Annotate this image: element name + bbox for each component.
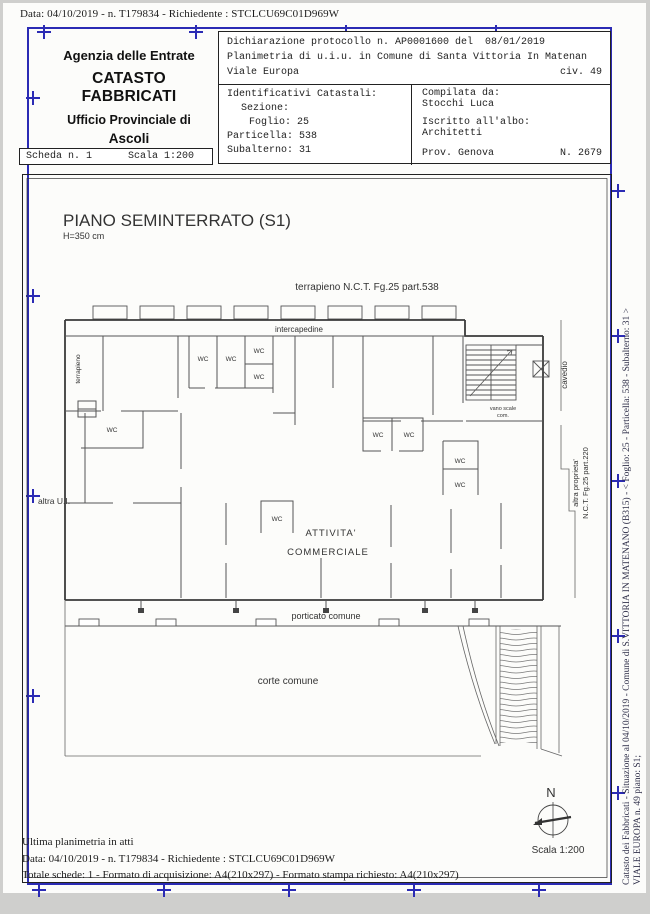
compass-north-label: N [546,785,555,800]
vano-scale-label-1: vano scale [490,406,516,412]
planimetria-line: Planimetria di u.i.u. in Comune di Santa… [227,50,602,65]
cadastral-identifiers: Identificativi Catastali: Sezione: Fogli… [219,85,412,165]
staircase [466,345,543,400]
registration-tick [32,883,46,897]
wc-label: WC [198,356,209,363]
footer-block: Ultima planimetria in atti Data: 04/10/2… [22,834,459,884]
declaration-section: Dichiarazione protocollo n. AP0001600 de… [219,32,610,85]
porticato-label: porticato comune [291,611,360,621]
wc-label: WC [226,356,237,363]
vano-scale-label-2: com. [497,413,509,419]
compass-icon: N [533,785,571,838]
altra-ui-label: altra U.I. [38,496,70,506]
floorplan-sheet: PIANO SEMINTERRATO (S1) H=350 cm terrapi… [21,173,613,885]
protocol-line: Dichiarazione protocollo n. AP0001600 de… [227,35,602,50]
wc-label: WC [107,427,118,434]
cadastral-floorplan-page: { "page": { "top_line": "Data: 04/10/201… [0,0,650,914]
registration-tick [532,883,546,897]
compiler-name: Stocchi Luca [422,99,602,110]
sezione-field: Sezione: [227,102,411,116]
cavedio-shaft [533,361,549,377]
street-name: Viale Europa [227,65,299,80]
identifiers-title: Identificativi Catastali: [227,88,411,102]
wc-label: WC [254,374,265,381]
agency-header: Agenzia delle Entrate CATASTO FABBRICATI… [43,36,215,146]
attivita-label-2: COMMERCIALE [287,547,369,558]
wc-label: WC [373,432,384,439]
office-city: Ascoli [43,131,215,146]
terrapieno-left-label: terrapieno [75,354,82,384]
street-row: Viale Europa civ. 49 [227,65,602,80]
footer-line-2: Data: 04/10/2019 - n. T179834 - Richiede… [22,851,459,868]
province-row: Prov. Genova N. 2679 [422,148,602,159]
ramp [458,626,562,756]
wc-label: WC [254,348,265,355]
registration-tick [282,883,296,897]
plan-scale-label: Scala 1:200 [532,845,585,856]
office-line: Ufficio Provinciale di [43,113,215,127]
intercapedine-label: intercapedine [275,325,324,334]
albo-label: Iscritto all'albo: [422,117,602,128]
side-margin-line-1: Catasto dei Fabbricati - Situazione al 0… [622,29,633,885]
compiled-by-label: Compilata da: [422,88,602,99]
catasto-title: CATASTO FABBRICATI [43,70,215,106]
scanned-document: Data: 04/10/2019 - n. T179834 - Richiede… [3,3,646,893]
albo-number: N. 2679 [560,148,602,159]
agency-name: Agenzia delle Entrate [43,48,215,63]
scheda-scale: Scala 1:200 [128,151,194,162]
civic-number: civ. 49 [560,65,602,80]
altra-proprieta-label-1: altra proprieta' [571,459,580,507]
side-margin-line-2: VIALE EUROPA n. 49 piano: S1; [633,29,644,885]
scheda-strip: Scheda n. 1 Scala 1:200 [19,148,213,165]
structural-walls [65,320,543,600]
footer-line-3: Totale schede: 1 - Formato di acquisizio… [22,867,459,884]
albo-value: Architetti [422,128,602,139]
altra-proprieta-label-2: N.C.T. Fg.25 part.220 [581,447,590,519]
side-margin-text: Catasto dei Fabbricati - Situazione al 0… [622,29,644,885]
identifiers-section: Identificativi Catastali: Sezione: Fogli… [219,85,610,165]
province: Prov. Genova [422,148,494,159]
registration-tick [407,883,421,897]
corte-label: corte comune [258,676,319,687]
plan-title: PIANO SEMINTERRATO (S1) [63,211,291,230]
subalterno-field: Subalterno: 31 [227,144,411,158]
attivita-label-1: ATTIVITA' [305,528,356,539]
wc-label: WC [404,432,415,439]
wc-label: WC [455,482,466,489]
wc-label: WC [455,458,466,465]
top-piers [93,306,456,319]
terrapieno-top-label: terrapieno N.C.T. Fg.25 part.538 [295,282,439,293]
compiler-info: Compilata da: Stocchi Luca Iscritto all'… [412,85,610,165]
declaration-box: Dichiarazione protocollo n. AP0001600 de… [218,31,611,164]
wc-label: WC [272,516,283,523]
request-data-line: Data: 04/10/2019 - n. T179834 - Richiede… [20,8,339,20]
particella-field: Particella: 538 [227,130,411,144]
foglio-field: Foglio: 25 [227,116,411,130]
registration-tick [157,883,171,897]
registration-tick [26,91,40,105]
wc-labels: WC WC WC WC WC WC WC WC WC WC [107,348,466,523]
plan-height-note: H=350 cm [63,231,104,241]
footer-line-1: Ultima planimetria in atti [22,834,459,851]
scheda-number: Scheda n. 1 [26,151,92,162]
